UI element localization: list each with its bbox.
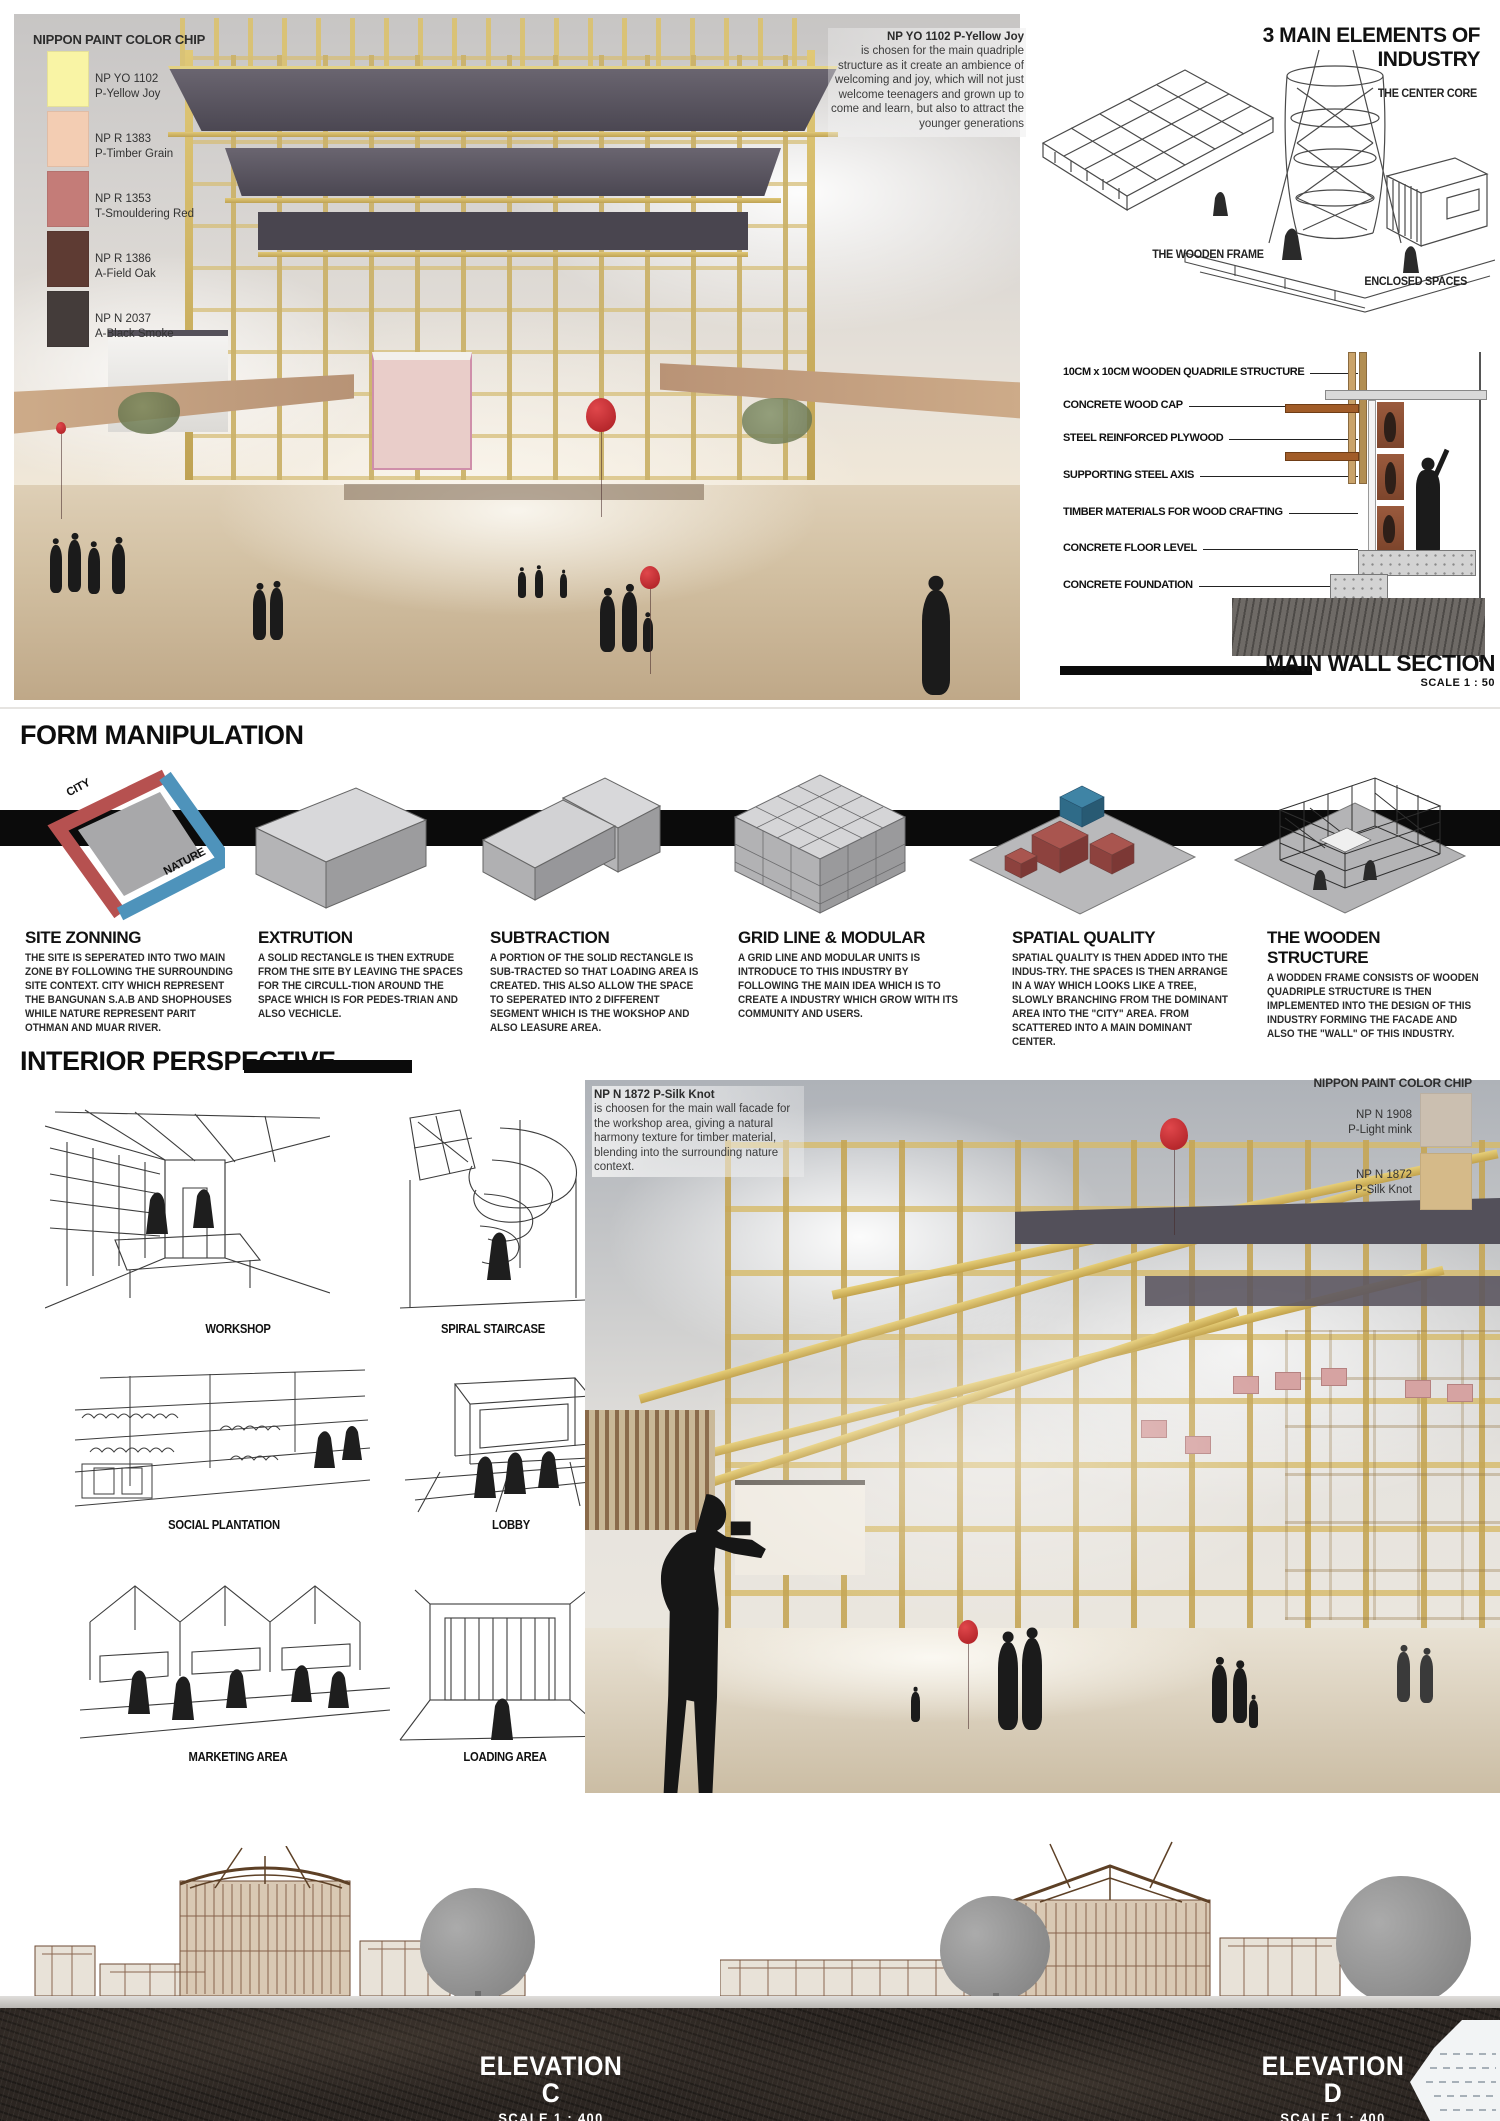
sketch-label: LOADING AREA: [411, 1750, 600, 1764]
color-chip: [47, 111, 89, 167]
chip-label: NP N 1908 P-Light mink: [1282, 1108, 1412, 1138]
beam: [258, 252, 748, 257]
person: [68, 540, 81, 592]
chip-code: NP R 1386: [95, 252, 156, 267]
river-section: [1400, 2020, 1500, 2121]
title-bar: [244, 1060, 412, 1073]
note-body: is choosen for the main wall facade for …: [594, 1102, 802, 1174]
color-note: NP YO 1102 P-Yellow Joy is chosen for th…: [828, 28, 1026, 137]
person: [518, 572, 526, 598]
note-title: NP N 1872 P-Silk Knot: [594, 1089, 715, 1101]
step-site-zoning: SITE ZONNING THE SITE IS SEPERATED INTO …: [25, 928, 237, 1035]
person: [1416, 470, 1440, 556]
red-balloon: [586, 398, 616, 432]
step-extrusion: EXTRUTION A SOLID RECTANGLE IS THEN EXTR…: [258, 928, 470, 1021]
step-body: A PORTION OF THE SOLID RECTANGLE IS SUB-…: [490, 951, 703, 1035]
step-subtraction: SUBTRACTION A PORTION OF THE SOLID RECTA…: [490, 928, 702, 1035]
concrete-floor: [1358, 550, 1476, 576]
person: [88, 548, 100, 594]
wooden-frame-label: THE WOODEN FRAME: [1152, 247, 1263, 261]
elevation-scale: SCALE 1 : 400: [1250, 2110, 1416, 2121]
chip-code: NP N 1908: [1282, 1108, 1412, 1123]
panel-title: NIPPON PAINT COLOR CHIP: [1280, 1076, 1472, 1090]
person: [622, 592, 637, 652]
person: [1233, 1668, 1247, 1723]
step-body: A SOLID RECTANGLE IS THEN EXTRUDE FROM T…: [258, 951, 471, 1021]
step-title: THE WOODEN STRUCTURE: [1267, 928, 1485, 968]
wall-label: CONCRETE FLOOR LEVEL: [1063, 542, 1197, 554]
center-core-label: THE CENTER CORE: [1369, 86, 1477, 100]
step-title: SITE ZONNING: [25, 928, 237, 948]
red-balloon: [56, 422, 66, 434]
step-title: GRID LINE & MODULAR: [738, 928, 958, 948]
timber-panel: [1377, 506, 1404, 550]
person: [112, 544, 125, 594]
chip-name: T-Smouldering Red: [95, 207, 194, 222]
elevation-c-drawing: [30, 1846, 710, 2011]
wall-section-drawing: [1240, 352, 1485, 662]
tree: [420, 1888, 535, 2000]
extrusion-diagram: [238, 770, 438, 920]
person: [922, 590, 950, 695]
loading-area-sketch: [395, 1580, 615, 1748]
person: [560, 574, 567, 598]
spiral-staircase-sketch: [380, 1108, 600, 1318]
color-chip: [47, 171, 89, 227]
ground-hatch: [1232, 598, 1485, 656]
sketch-label: SPIRAL STAIRCASE: [399, 1322, 588, 1336]
panel-title: NIPPON PAINT COLOR CHIP: [33, 32, 273, 47]
chip-code: NP R 1383: [95, 132, 173, 147]
sketch-label: LOBBY: [417, 1518, 606, 1532]
timber-panel: [1377, 402, 1404, 448]
presentation-board: NIPPON PAINT COLOR CHIP NP YO 1102 P-Yel…: [0, 0, 1500, 2121]
wall-section-title: MAIN WALL SECTION: [1240, 650, 1495, 677]
wall-section-scale: SCALE 1 : 50: [1240, 677, 1495, 689]
step-grid-modular: GRID LINE & MODULAR A GRID LINE AND MODU…: [738, 928, 958, 1021]
walkway-shadow: [344, 484, 704, 500]
color-chip: [47, 51, 89, 107]
person: [535, 570, 543, 598]
chip-name: A-Field Oak: [95, 267, 156, 282]
elevation-title: ELEVATION C: [468, 2053, 634, 2107]
wood-post: [1359, 352, 1367, 484]
timber-panel: [1377, 454, 1404, 500]
photographer-silhouette: [638, 1488, 793, 1793]
wall-label: STEEL REINFORCED PLYWOOD: [1063, 432, 1223, 444]
wood-post: [1348, 352, 1356, 484]
site-zoning-diagram: [20, 768, 225, 928]
step-body: A WODDEN FRAME CONSISTS OF WOODEN QUADRI…: [1267, 971, 1486, 1041]
elevation-title: ELEVATION D: [1250, 2053, 1416, 2107]
wall-section-title-block: MAIN WALL SECTION SCALE 1 : 50: [1240, 650, 1495, 689]
marketing-area-sketch: [80, 1560, 390, 1750]
person: [1420, 1655, 1433, 1703]
paint-chip-panel-left: NIPPON PAINT COLOR CHIP: [33, 32, 273, 47]
chip-name: P-Light mink: [1282, 1123, 1412, 1138]
tree: [940, 1896, 1050, 2001]
color-chip: [47, 231, 89, 287]
red-balloon: [1160, 1118, 1188, 1150]
floor-slab: [225, 148, 781, 196]
chip-label: NP N 1872 P-Silk Knot: [1282, 1168, 1412, 1198]
chip-label: NP R 1353 T-Smouldering Red: [95, 192, 194, 222]
elevation-c-label: ELEVATION C SCALE 1 : 400: [468, 2053, 634, 2121]
chip-label: NP R 1383 P-Timber Grain: [95, 132, 173, 162]
step-title: SUBTRACTION: [490, 928, 702, 948]
child-silhouette: [1249, 1700, 1258, 1728]
chip-label: NP YO 1102 P-Yellow Joy: [95, 72, 160, 102]
person: [998, 1642, 1018, 1730]
person: [1397, 1652, 1410, 1702]
timber-arm: [1285, 404, 1359, 413]
chip-code: NP YO 1102: [95, 72, 160, 87]
chip-code: NP N 1872: [1282, 1168, 1412, 1183]
red-balloon: [640, 566, 660, 589]
color-chip: [1420, 1093, 1472, 1147]
enclosed-spaces-label: ENCLOSED SPACES: [1359, 274, 1467, 288]
roof-slab: [168, 66, 838, 131]
wall-label: CONCRETE WOOD CAP: [1063, 399, 1183, 411]
figure-silhouette: [1383, 515, 1395, 543]
step-title: EXTRUTION: [258, 928, 470, 948]
workshop-sketch: [45, 1108, 330, 1318]
figure-silhouette: [1384, 412, 1396, 442]
elevation-scale: SCALE 1 : 400: [468, 2110, 634, 2121]
person: [1212, 1665, 1227, 1723]
figure-silhouette: [1385, 462, 1396, 494]
person: [253, 590, 266, 640]
enclosed-spaces-sketch: [1387, 158, 1487, 246]
form-manipulation-title: FORM MANIPULATION: [20, 720, 303, 751]
sketch-label: SOCIAL PLANTATION: [116, 1518, 332, 1532]
social-plantation-sketch: [70, 1368, 375, 1518]
step-body: A GRID LINE AND MODULAR UNITS IS INTRODU…: [738, 951, 959, 1021]
tree: [1336, 1876, 1471, 2006]
child-silhouette: [643, 618, 653, 652]
beam: [225, 198, 781, 203]
red-balloon: [958, 1620, 978, 1644]
chip-label: NP N 2037 A-Black Smoke: [95, 312, 174, 342]
step-title: SPATIAL QUALITY: [1012, 928, 1230, 948]
pink-kiosk: [372, 352, 472, 470]
ground: [14, 485, 1020, 700]
chip-name: P-Silk Knot: [1282, 1183, 1412, 1198]
chip-name: P-Timber Grain: [95, 147, 173, 162]
person: [911, 1692, 920, 1722]
sketch-label: WORKSHOP: [130, 1322, 346, 1336]
sketch-label: MARKETING AREA: [130, 1750, 346, 1764]
beam: [168, 132, 838, 137]
step-spatial-quality: SPATIAL QUALITY SPATIAL QUALITY IS THEN …: [1012, 928, 1230, 1049]
concrete-cap: [1325, 390, 1487, 400]
step-wooden-structure: THE WOODEN STRUCTURE A WODDEN FRAME CONS…: [1267, 928, 1485, 1041]
elevation-d-label: ELEVATION D SCALE 1 : 400: [1250, 2053, 1416, 2121]
wooden-structure-diagram: [1225, 748, 1470, 923]
step-body: SPATIAL QUALITY IS THEN ADDED INTO THE I…: [1012, 951, 1231, 1049]
chip-name: P-Yellow Joy: [95, 87, 160, 102]
chip-code: NP N 2037: [95, 312, 174, 327]
color-chip: [47, 291, 89, 347]
note-title: NP YO 1102 P-Yellow Joy: [887, 31, 1024, 43]
person: [1022, 1638, 1042, 1730]
person: [50, 545, 62, 593]
color-chip: [1420, 1153, 1472, 1210]
section-divider: [0, 707, 1500, 709]
wooden-frame-sketch: [1043, 70, 1273, 210]
chip-code: NP R 1353: [95, 192, 194, 207]
person: [270, 588, 283, 640]
person: [600, 596, 615, 652]
wall-label: CONCRETE FOUNDATION: [1063, 579, 1193, 591]
subtraction-diagram: [455, 760, 670, 925]
color-note: NP N 1872 P-Silk Knot is choosen for the…: [592, 1086, 804, 1177]
spatial-quality-diagram: [965, 752, 1200, 922]
chip-label: NP R 1386 A-Field Oak: [95, 252, 156, 282]
grid-modular-diagram: [710, 755, 925, 920]
wall-label: SUPPORTING STEEL AXIS: [1063, 469, 1194, 481]
step-body: THE SITE IS SEPERATED INTO TWO MAIN ZONE…: [25, 951, 238, 1035]
center-core-sketch: [1269, 50, 1401, 243]
chip-name: A-Black Smoke: [95, 327, 174, 342]
floor-slab: [258, 212, 748, 250]
note-body: is chosen for the main quadriple structu…: [830, 44, 1024, 131]
timber-arm: [1285, 452, 1359, 461]
